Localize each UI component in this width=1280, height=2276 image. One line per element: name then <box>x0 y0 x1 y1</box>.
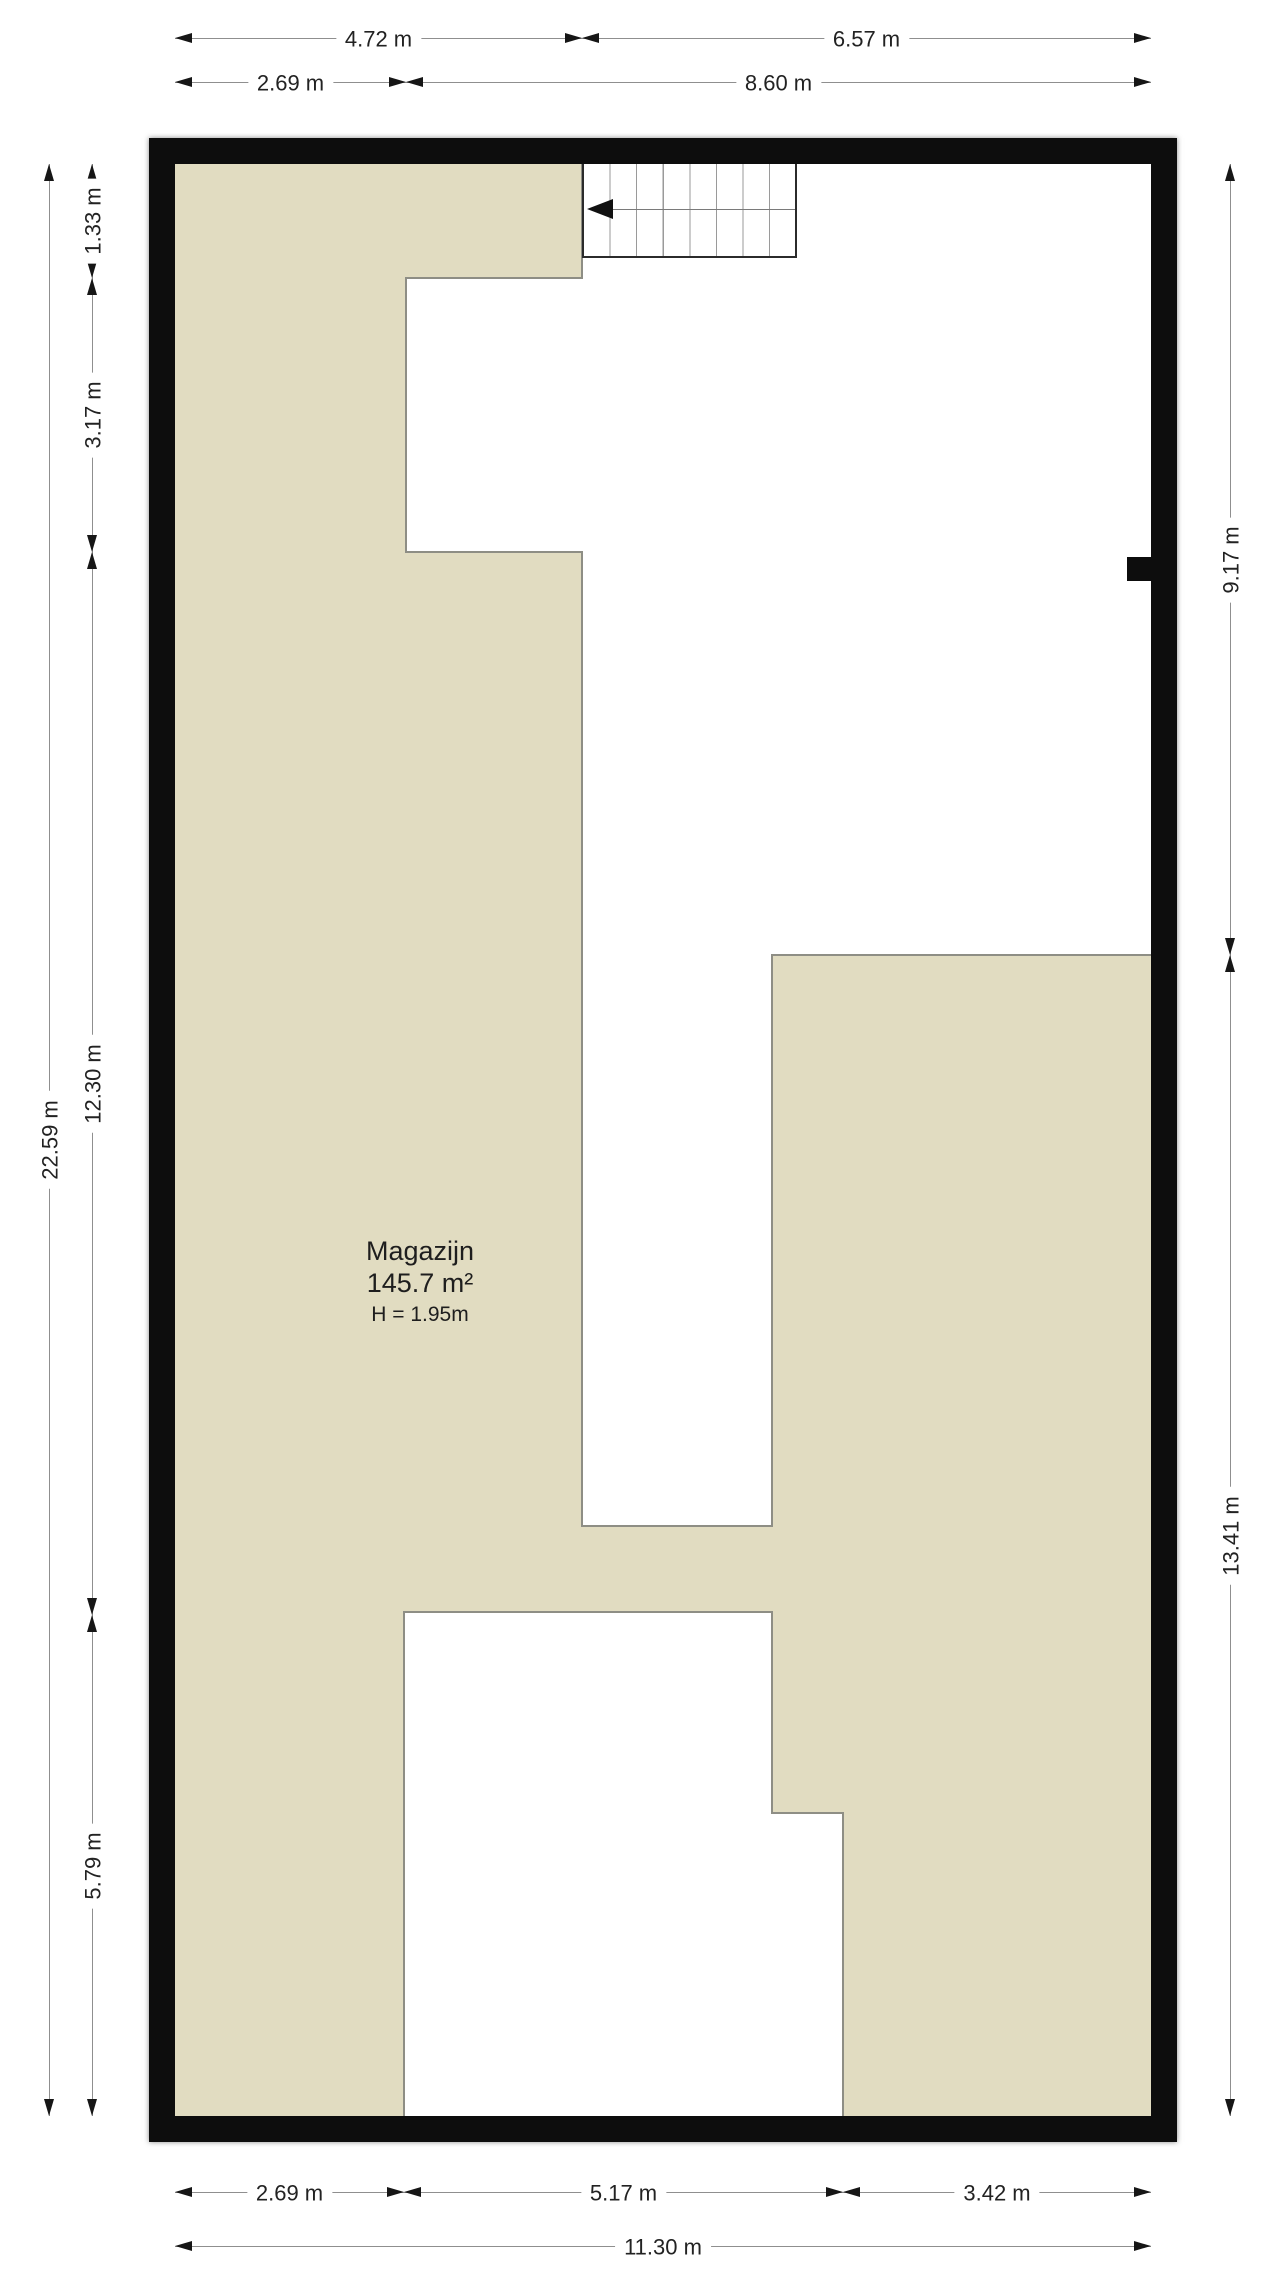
dim-label: 3.17 m <box>79 372 106 457</box>
arrowhead-right-icon <box>387 2187 404 2197</box>
arrowhead-down-icon <box>87 1598 97 1615</box>
open-floor-cutouts <box>175 164 1151 2116</box>
dim-label: 6.57 m <box>824 25 909 52</box>
arrowhead-left-icon <box>404 2187 421 2197</box>
dim-left-3: 12.30 m <box>92 552 93 1615</box>
arrowhead-right-icon <box>389 77 406 87</box>
arrowhead-left-icon <box>175 33 192 43</box>
stair-walk-line <box>590 209 795 210</box>
dim-right-2: 13.41 m <box>1230 955 1231 2116</box>
dim-label: 22.59 m <box>36 1091 63 1189</box>
arrowhead-down-icon <box>1225 938 1235 955</box>
dim-label: 9.17 m <box>1217 517 1244 602</box>
dim-label: 5.79 m <box>79 1823 106 1908</box>
dim-bottom1-middle: 5.17 m <box>404 2192 843 2193</box>
dim-bottom-total: 11.30 m <box>175 2246 1151 2247</box>
arrowhead-down-icon <box>1225 2099 1235 2116</box>
dim-label: 2.69 m <box>248 69 333 96</box>
floor-plan: Magazijn 145.7 m² H = 1.95m 4.72 m 6.57 … <box>0 0 1280 2276</box>
dim-label: 8.60 m <box>736 69 821 96</box>
arrowhead-down-icon <box>87 2099 97 2116</box>
wall-stub <box>1127 557 1151 581</box>
arrowhead-left-icon <box>843 2187 860 2197</box>
dim-left-1: 1.33 m <box>92 164 93 278</box>
dim-label: 4.72 m <box>336 25 421 52</box>
arrowhead-left-icon <box>175 2187 192 2197</box>
floor-area: Magazijn 145.7 m² H = 1.95m <box>175 164 1151 2116</box>
arrowhead-right-icon <box>1134 77 1151 87</box>
dim-label: 12.30 m <box>79 1035 106 1133</box>
arrowhead-up-icon <box>44 164 54 181</box>
arrowhead-right-icon <box>1134 2241 1151 2251</box>
arrowhead-up-icon <box>1225 164 1235 181</box>
dim-label: 11.30 m <box>615 2233 711 2260</box>
arrowhead-right-icon <box>565 33 582 43</box>
room-height: H = 1.95m <box>270 1303 570 1328</box>
dim-label: 1.33 m <box>79 178 106 263</box>
dim-right-1: 9.17 m <box>1230 164 1231 955</box>
arrowhead-left-icon <box>175 77 192 87</box>
dim-top1-right: 6.57 m <box>582 38 1151 39</box>
arrowhead-down-icon <box>87 535 97 552</box>
lower-open-area <box>404 1612 843 2116</box>
dim-label: 5.17 m <box>581 2179 666 2206</box>
arrowhead-right-icon <box>1134 33 1151 43</box>
arrowhead-right-icon <box>826 2187 843 2197</box>
arrowhead-left-icon <box>175 2241 192 2251</box>
arrowhead-up-icon <box>87 1615 97 1632</box>
staircase <box>582 164 797 258</box>
arrowhead-up-icon <box>1225 955 1235 972</box>
room-name: Magazijn <box>270 1236 570 1268</box>
dim-label: 2.69 m <box>247 2179 332 2206</box>
dim-label: 13.41 m <box>1217 1487 1244 1585</box>
dim-top2-right: 8.60 m <box>406 82 1151 83</box>
dim-bottom1-left: 2.69 m <box>175 2192 404 2193</box>
dim-label: 3.42 m <box>954 2179 1039 2206</box>
stair-treads <box>584 164 795 256</box>
arrowhead-right-icon <box>1134 2187 1151 2197</box>
dim-left-total: 22.59 m <box>49 164 50 2116</box>
arrowhead-down-icon <box>44 2099 54 2116</box>
arrowhead-left-icon <box>582 33 599 43</box>
dim-top1-left: 4.72 m <box>175 38 582 39</box>
room-label: Magazijn 145.7 m² H = 1.95m <box>270 1236 570 1327</box>
arrowhead-left-icon <box>406 77 423 87</box>
dim-left-2: 3.17 m <box>92 278 93 552</box>
dim-top2-left: 2.69 m <box>175 82 406 83</box>
arrowhead-up-icon <box>87 278 97 295</box>
room-area: 145.7 m² <box>270 1268 570 1300</box>
dim-left-4: 5.79 m <box>92 1615 93 2116</box>
outer-wall: Magazijn 145.7 m² H = 1.95m <box>149 138 1177 2142</box>
arrowhead-up-icon <box>87 552 97 569</box>
stair-direction-arrow-icon <box>587 199 613 219</box>
dim-bottom1-right: 3.42 m <box>843 2192 1151 2193</box>
